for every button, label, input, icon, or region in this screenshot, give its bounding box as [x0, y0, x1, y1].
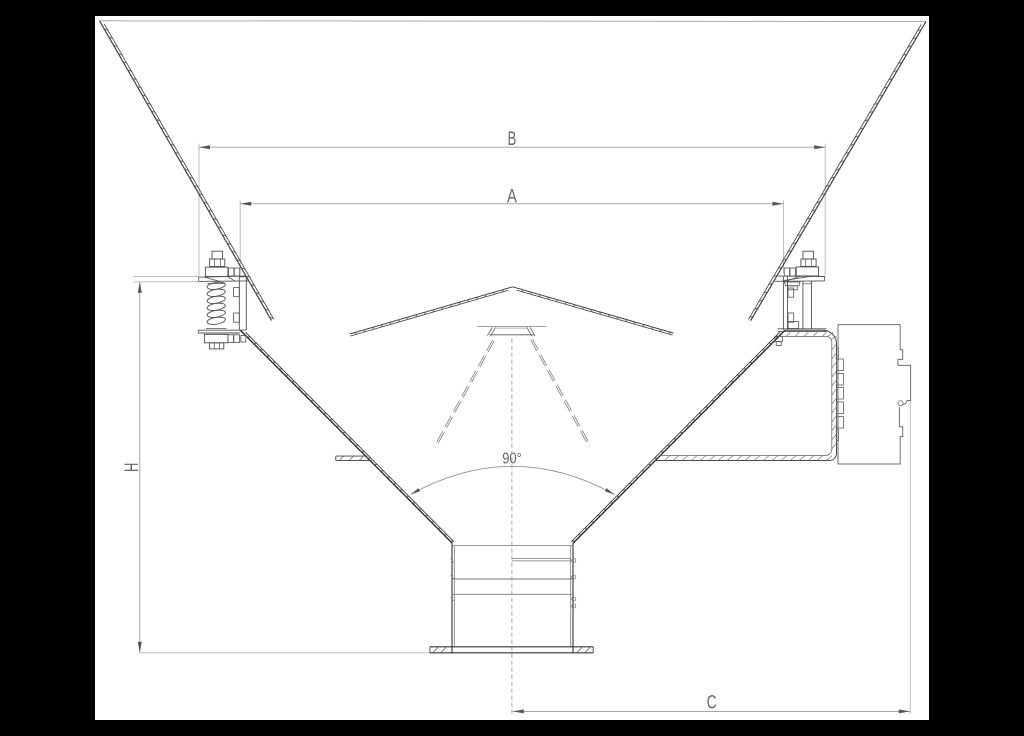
svg-text:B: B [508, 129, 517, 150]
svg-text:A: A [507, 186, 517, 207]
svg-text:C: C [707, 691, 717, 713]
svg-text:H: H [122, 463, 143, 472]
